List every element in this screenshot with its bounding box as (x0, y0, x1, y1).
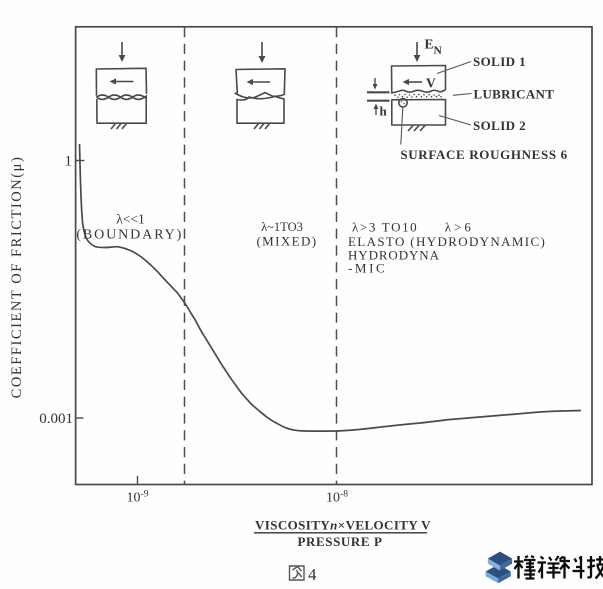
svg-text:λ>3 TO10: λ>3 TO10 (352, 220, 418, 235)
svg-text:λ<<1: λ<<1 (116, 212, 145, 227)
svg-text:4: 4 (308, 565, 317, 584)
svg-text:1: 1 (65, 154, 73, 170)
svg-text:V: V (426, 76, 436, 91)
svg-text:VISCOSITYn×VELOCITY V: VISCOSITYn×VELOCITY V (255, 518, 431, 533)
svg-text:(BOUNDARY): (BOUNDARY) (76, 228, 183, 243)
svg-text:SOLID 2: SOLID 2 (473, 118, 526, 133)
svg-text:SURFACE ROUGHNESS 6: SURFACE ROUGHNESS 6 (400, 147, 567, 162)
svg-text:PRESSURE P: PRESSURE P (297, 534, 382, 549)
svg-text:SOLID 1: SOLID 1 (473, 54, 526, 69)
svg-text:COEFFICIENT OF FRICTION(μ): COEFFICIENT OF FRICTION(μ) (9, 156, 25, 399)
svg-text:λ>6: λ>6 (445, 220, 474, 235)
svg-text:10-9: 10-9 (127, 490, 149, 506)
svg-text:0.001: 0.001 (39, 411, 73, 427)
svg-text:EN: EN (425, 37, 443, 58)
svg-text:-MIC: -MIC (348, 261, 387, 276)
svg-text:LUBRICANT: LUBRICANT (474, 86, 555, 101)
svg-text:λ~1TO3: λ~1TO3 (261, 220, 303, 234)
svg-text:h: h (380, 104, 388, 119)
svg-text:(MIXED): (MIXED) (256, 234, 317, 249)
svg-text:10-8: 10-8 (326, 490, 348, 506)
